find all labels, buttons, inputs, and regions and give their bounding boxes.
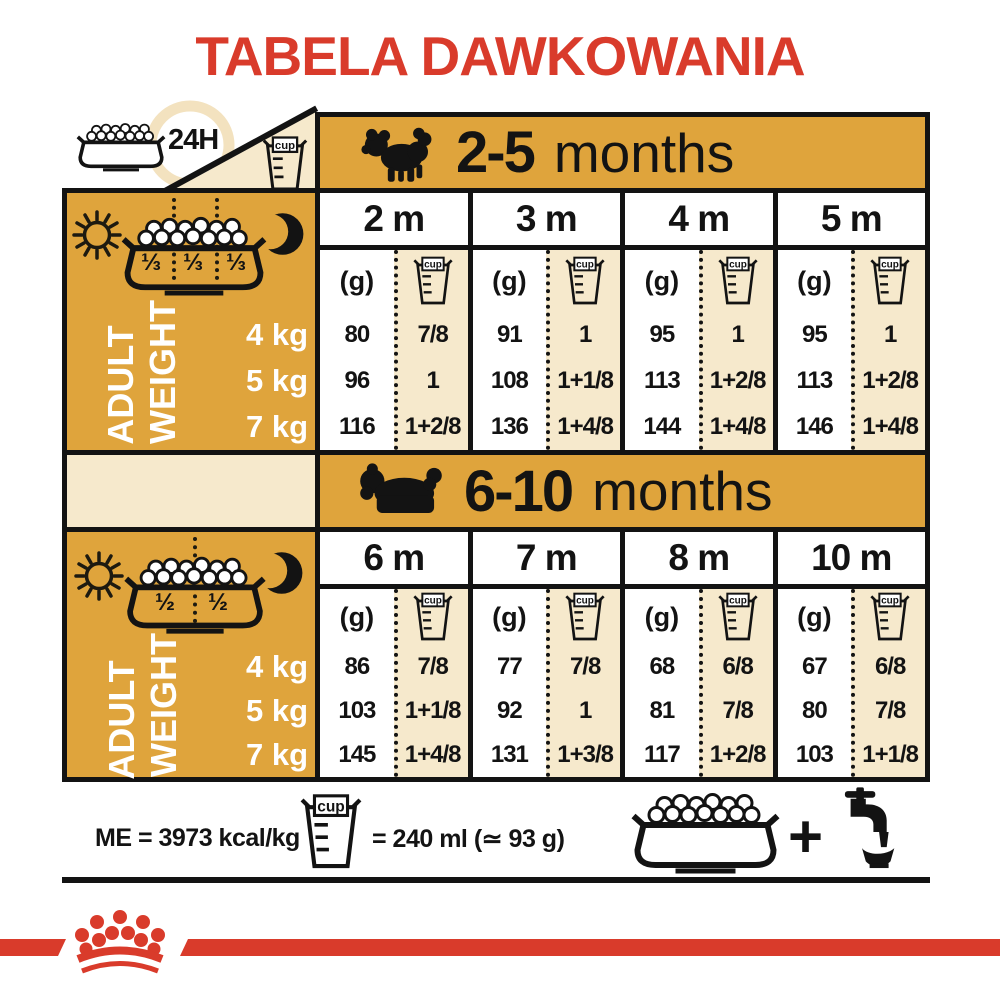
month-body: (g) 68 81 117 6/8 7/8 1+2/8	[625, 589, 773, 777]
cup-icon	[398, 589, 468, 645]
cups-value: 1+2/8	[703, 358, 773, 404]
cups-value: 7/8	[398, 645, 468, 689]
grams-value: 103	[778, 733, 852, 777]
weight-row-label: 7 kg	[198, 737, 308, 773]
month-header: 5 m	[778, 193, 926, 245]
age-range: 2-5	[456, 119, 534, 186]
puppy-icon	[358, 122, 436, 184]
food-bowl-24h-icon	[76, 120, 166, 173]
age-range: 6-10	[464, 458, 572, 525]
grams-value: 81	[625, 689, 699, 733]
dosage-table-2-5-months: 2 m (g) 80 96 116 7/8 1 1+2/8 3 m	[315, 188, 930, 455]
metabolizable-energy-label: ME = 3973 kcal/kg	[95, 824, 300, 853]
month-header: 2 m	[320, 193, 468, 245]
weight-row-label: 4 kg	[198, 317, 308, 353]
grams-value: 95	[778, 312, 852, 358]
grams-value: 86	[320, 645, 394, 689]
cups-value: 1	[550, 689, 620, 733]
bottom-rule	[62, 877, 930, 883]
month-column: 10 m (g) 67 80 103 6/8 7/8 1+1/8	[778, 532, 926, 777]
grams-unit-label: (g)	[320, 589, 394, 645]
cup-icon	[703, 589, 773, 645]
cups-value: 1+4/8	[855, 404, 925, 450]
dosage-table-6-10-months: 6 m (g) 86 103 145 7/8 1+1/8 1+4/8 7 m	[315, 527, 930, 782]
portion-fraction: ⅓	[214, 249, 258, 277]
portion-fraction: ½	[196, 589, 240, 617]
weight-label: WEIGHT	[143, 292, 183, 452]
cup-equivalence-label: = 240 ml (≃ 93 g)	[372, 824, 564, 854]
month-body: (g) 77 92 131 7/8 1 1+3/8	[473, 589, 621, 777]
grams-unit-label: (g)	[625, 250, 699, 312]
month-column: 5 m (g) 95 113 146 1 1+2/8 1+4/8	[778, 193, 926, 450]
weight-row-label: 5 kg	[198, 363, 308, 399]
cups-value: 6/8	[703, 645, 773, 689]
grams-value: 91	[473, 312, 547, 358]
age-unit: months	[554, 121, 734, 185]
cups-value: 7/8	[855, 689, 925, 733]
grams-unit-label: (g)	[473, 250, 547, 312]
grams-unit-label: (g)	[625, 589, 699, 645]
month-column: 2 m (g) 80 96 116 7/8 1 1+2/8	[320, 193, 468, 450]
month-column: 8 m (g) 68 81 117 6/8 7/8 1+2/8	[625, 532, 773, 777]
month-column: 6 m (g) 86 103 145 7/8 1+1/8 1+4/8	[320, 532, 468, 777]
month-column: 4 m (g) 95 113 144 1 1+2/8 1+4/8	[625, 193, 773, 450]
cups-value: 1	[703, 312, 773, 358]
grams-value: 80	[778, 689, 852, 733]
age-unit: months	[592, 459, 772, 523]
month-body: (g) 67 80 103 6/8 7/8 1+1/8	[778, 589, 926, 777]
food-bowl-icon	[628, 788, 783, 876]
red-stripe-right	[180, 939, 1000, 956]
month-column: 7 m (g) 77 92 131 7/8 1 1+3/8	[473, 532, 621, 777]
24h-label: 24H	[168, 124, 218, 157]
grams-value: 116	[320, 404, 394, 450]
grams-value: 95	[625, 312, 699, 358]
month-body: (g) 91 108 136 1 1+1/8 1+4/8	[473, 250, 621, 450]
grams-value: 144	[625, 404, 699, 450]
royal-canin-crown-logo	[64, 905, 176, 977]
feeding-table-infographic: TABELA DAWKOWANIA 24H 2-5 months ⅓ ⅓ ⅓ A…	[0, 0, 1000, 1000]
age-band-2-5-months: 2-5 months	[315, 112, 930, 193]
cups-value: 1+1/8	[550, 358, 620, 404]
weight-row-label: 4 kg	[198, 649, 308, 685]
month-header: 3 m	[473, 193, 621, 245]
grams-value: 145	[320, 733, 394, 777]
age-band-6-10-months: 6-10 months	[315, 450, 930, 532]
cups-value: 1+2/8	[703, 733, 773, 777]
weight-row-label: 7 kg	[198, 409, 308, 445]
page-title: TABELA DAWKOWANIA	[0, 24, 1000, 88]
cup-icon	[550, 589, 620, 645]
measuring-cup-icon	[300, 793, 362, 871]
portion-fraction: ⅓	[171, 249, 215, 277]
red-stripe-left	[0, 939, 66, 956]
grams-value: 103	[320, 689, 394, 733]
grams-unit-label: (g)	[778, 589, 852, 645]
grams-unit-label: (g)	[778, 250, 852, 312]
adult-label: ADULT	[102, 640, 142, 800]
cup-icon	[855, 250, 925, 312]
grams-value: 117	[625, 733, 699, 777]
cups-value: 1	[398, 358, 468, 404]
weight-label: WEIGHT	[144, 625, 184, 785]
grams-value: 77	[473, 645, 547, 689]
month-body: (g) 95 113 144 1 1+2/8 1+4/8	[625, 250, 773, 450]
cup-icon	[398, 250, 468, 312]
month-header: 6 m	[320, 532, 468, 584]
month-header: 7 m	[473, 532, 621, 584]
divider-block	[62, 455, 315, 527]
month-column: 3 m (g) 91 108 136 1 1+1/8 1+4/8	[473, 193, 621, 450]
cups-value: 1+2/8	[398, 404, 468, 450]
cup-icon	[703, 250, 773, 312]
grams-value: 131	[473, 733, 547, 777]
grams-value: 136	[473, 404, 547, 450]
month-body: (g) 95 113 146 1 1+2/8 1+4/8	[778, 250, 926, 450]
month-header: 10 m	[778, 532, 926, 584]
month-body: (g) 80 96 116 7/8 1 1+2/8	[320, 250, 468, 450]
adult-label: ADULT	[101, 305, 141, 465]
grams-value: 68	[625, 645, 699, 689]
adult-dog-icon	[358, 462, 444, 520]
cups-value: 7/8	[703, 689, 773, 733]
plus-sign: +	[788, 802, 823, 871]
cups-value: 1+4/8	[550, 404, 620, 450]
portion-fraction: ⅓	[129, 249, 173, 277]
cups-value: 7/8	[550, 645, 620, 689]
grams-value: 146	[778, 404, 852, 450]
month-header: 4 m	[625, 193, 773, 245]
cup-icon	[855, 589, 925, 645]
grams-unit-label: (g)	[473, 589, 547, 645]
grams-value: 108	[473, 358, 547, 404]
cups-value: 1+1/8	[855, 733, 925, 777]
cup-icon	[550, 250, 620, 312]
cups-value: 1+4/8	[398, 733, 468, 777]
measuring-cup-icon	[262, 136, 308, 192]
grams-value: 113	[625, 358, 699, 404]
month-header: 8 m	[625, 532, 773, 584]
cups-value: 1+1/8	[398, 689, 468, 733]
grams-unit-label: (g)	[320, 250, 394, 312]
cups-value: 6/8	[855, 645, 925, 689]
cups-value: 1+2/8	[855, 358, 925, 404]
cups-value: 7/8	[398, 312, 468, 358]
weight-row-label: 5 kg	[198, 693, 308, 729]
grams-value: 113	[778, 358, 852, 404]
grams-value: 80	[320, 312, 394, 358]
grams-value: 67	[778, 645, 852, 689]
cups-value: 1+3/8	[550, 733, 620, 777]
grams-value: 96	[320, 358, 394, 404]
grams-value: 92	[473, 689, 547, 733]
month-body: (g) 86 103 145 7/8 1+1/8 1+4/8	[320, 589, 468, 777]
water-tap-icon	[824, 786, 900, 876]
cups-value: 1	[855, 312, 925, 358]
cups-value: 1+4/8	[703, 404, 773, 450]
cups-value: 1	[550, 312, 620, 358]
portion-fraction: ½	[143, 589, 187, 617]
